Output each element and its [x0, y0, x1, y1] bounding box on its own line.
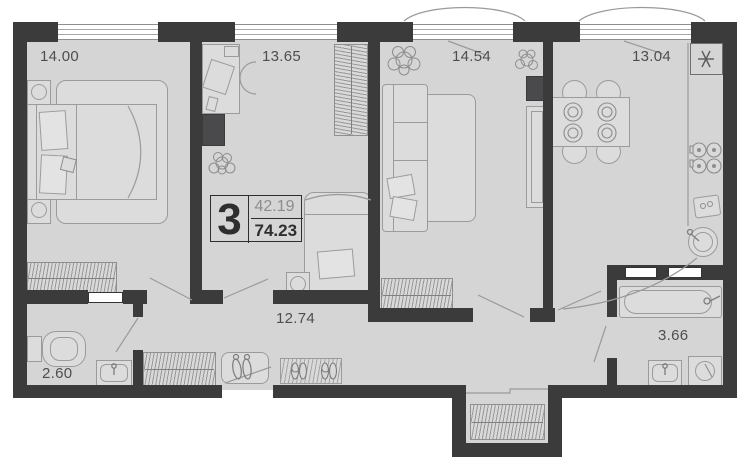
niche-wall — [452, 443, 562, 457]
room-area-label-hallway: 12.74 — [276, 310, 315, 327]
small-appliance-icon — [693, 194, 722, 218]
bed-sheet-line — [76, 104, 77, 200]
pillow-icon — [386, 174, 415, 199]
pillow-icon — [389, 196, 417, 221]
rooms-count-cell: 3 — [211, 196, 249, 243]
wall-living-kitchen — [543, 42, 553, 308]
room-area-label-kitchen: 13.04 — [632, 48, 671, 65]
wall-bedroom1-bedroom2 — [190, 42, 202, 290]
area-summary-box: 3 42.19 74.23 — [210, 195, 302, 242]
room-area-label-bedroom1: 14.00 — [40, 48, 79, 65]
toilet-bowl-inner — [50, 337, 78, 361]
vent-shaft-box — [690, 43, 723, 75]
niche-wardrobe-icon — [470, 404, 545, 440]
bed-headboard — [36, 104, 37, 200]
wall-wc-right — [133, 350, 143, 398]
tv-console-inner — [531, 111, 543, 203]
entrance-mat — [221, 352, 269, 384]
bathroom-door — [625, 267, 657, 278]
pillow-icon — [39, 110, 69, 151]
kitchen-sink-inner — [693, 232, 713, 252]
wall-wc-right — [133, 290, 143, 317]
lamp-icon — [31, 202, 47, 218]
bathtub-inner — [624, 290, 712, 314]
living-area-value: 42.19 — [255, 198, 295, 216]
wardrobe-icon — [334, 44, 368, 136]
wall-segment — [337, 22, 413, 42]
sofa-seam — [393, 122, 428, 123]
wall-living-bottom — [380, 308, 473, 322]
wc-sink-inner — [100, 364, 128, 382]
wall-bedroom2-living — [368, 42, 380, 322]
balcony-arc — [579, 8, 705, 22]
pillow-icon — [317, 248, 355, 279]
room-area-label-wc: 2.60 — [42, 365, 72, 382]
wall-segment — [513, 22, 580, 42]
balcony-window-icon — [413, 24, 513, 40]
balcony-arc — [404, 8, 525, 22]
total-area-cell: 74.23 — [251, 218, 303, 243]
wall-hall-top — [273, 290, 368, 304]
wall-segment — [273, 385, 452, 398]
window-icon — [58, 24, 158, 40]
wall-bath-left — [607, 358, 617, 398]
total-area-value: 74.23 — [255, 221, 298, 241]
wc-door — [88, 292, 123, 303]
tv-icon — [202, 114, 225, 146]
wall-stub — [190, 290, 223, 304]
wardrobe-icon — [381, 278, 453, 311]
wall-segment — [13, 385, 222, 398]
washing-machine-drum — [695, 361, 715, 381]
balcony-window-icon — [580, 24, 691, 40]
wall-bath-left — [607, 265, 617, 317]
bathroom-sink-inner — [652, 364, 678, 382]
monitor-icon — [224, 46, 239, 57]
lamp-icon — [31, 84, 47, 100]
bathroom-door — [668, 267, 702, 278]
floor-plan: 14.00 13.65 14.54 13.04 12.74 2.60 3.66 … — [0, 0, 753, 472]
wall-segment — [560, 385, 737, 398]
bed-line — [304, 214, 372, 215]
pillow-icon — [39, 154, 68, 194]
wall-foot — [530, 308, 555, 322]
rooms-count: 3 — [217, 198, 241, 242]
wall-left — [13, 22, 27, 398]
slipper-mat — [280, 358, 342, 384]
wall-hall-top — [27, 290, 88, 304]
sofa-seam — [393, 160, 428, 161]
wardrobe-icon — [143, 352, 216, 386]
room-area-label-bedroom2: 13.65 — [262, 48, 301, 65]
room-area-label-bathroom: 3.66 — [658, 327, 688, 344]
wall-segment — [158, 22, 235, 42]
toilet-tank — [27, 336, 42, 362]
room-area-label-living: 14.54 — [452, 48, 491, 65]
wall-right — [723, 22, 737, 398]
living-area-cell: 42.19 — [251, 196, 303, 218]
dining-table-icon — [552, 97, 630, 147]
window-icon — [235, 24, 337, 40]
